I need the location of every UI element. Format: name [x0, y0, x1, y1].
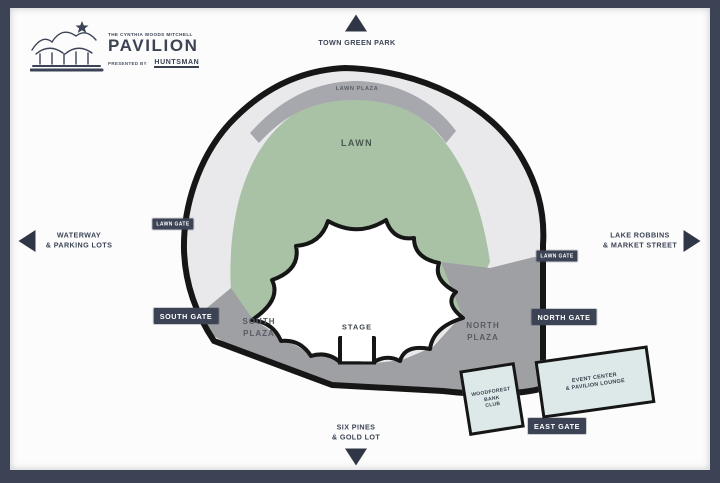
event-center-label: EVENT CENTER & PAVILION LOUNGE [564, 371, 625, 394]
stage-label: STAGE [342, 323, 372, 332]
arrow-down-icon [345, 449, 367, 466]
lawn-gate-west-badge: LAWN GATE [152, 219, 193, 230]
lawn-plaza-label: LAWN PLAZA [336, 86, 379, 92]
star-icon [76, 21, 89, 33]
direction-south-label: SIX PINES & GOLD LOT [332, 423, 380, 444]
pavilion-logo: THE CYNTHIA WOODS MITCHELL PAVILION PRES… [30, 20, 220, 80]
direction-north-label: TOWN GREEN PARK [318, 38, 395, 48]
logo-presented-by: PRESENTED BY [108, 61, 147, 66]
lawn-label: LAWN [341, 138, 373, 148]
direction-east-label: LAKE ROBBINS & MARKET STREET [603, 231, 677, 252]
arrow-left-icon [19, 230, 36, 252]
arrow-right-icon [684, 230, 701, 252]
stage-structure [342, 336, 372, 361]
direction-west-label: WATERWAY & PARKING LOTS [46, 231, 113, 252]
pavilion-map-page: { "colors": { "frame": "#3b4354", "badge… [0, 0, 720, 483]
south-gate-badge: SOUTH GATE [154, 308, 219, 324]
woodforest-bank-club-building: WOODFOREST BANK CLUB [459, 362, 525, 436]
pavilion-logo-art [30, 20, 106, 76]
north-gate-badge: NORTH GATE [532, 309, 597, 325]
lawn-gate-east-badge: LAWN GATE [536, 251, 577, 262]
arrow-up-icon [345, 15, 367, 32]
woodforest-label: WOODFOREST BANK CLUB [471, 386, 513, 412]
east-gate-badge: EAST GATE [528, 418, 586, 434]
south-plaza-label: SOUTH PLAZA [243, 316, 276, 340]
logo-venue-name: PAVILION [108, 37, 199, 55]
north-plaza-label: NORTH PLAZA [466, 320, 499, 344]
logo-sponsor: HUNTSMAN [154, 59, 199, 68]
